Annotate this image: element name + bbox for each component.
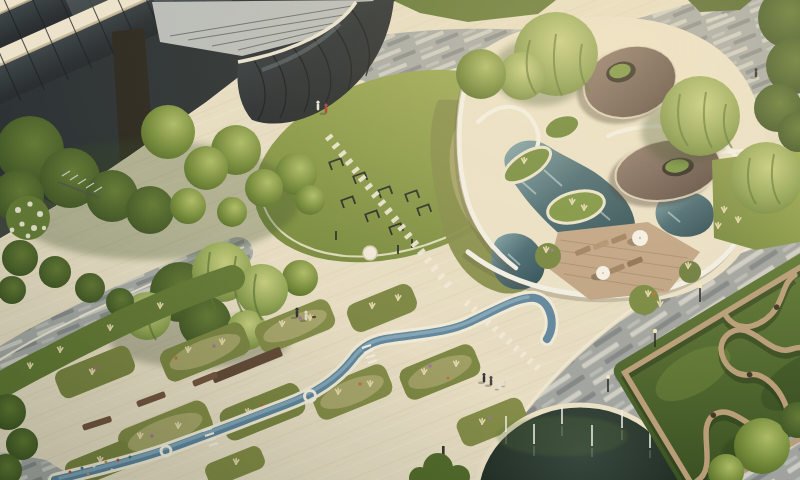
shadow-overlay bbox=[0, 0, 800, 480]
landscape-render bbox=[0, 0, 800, 480]
